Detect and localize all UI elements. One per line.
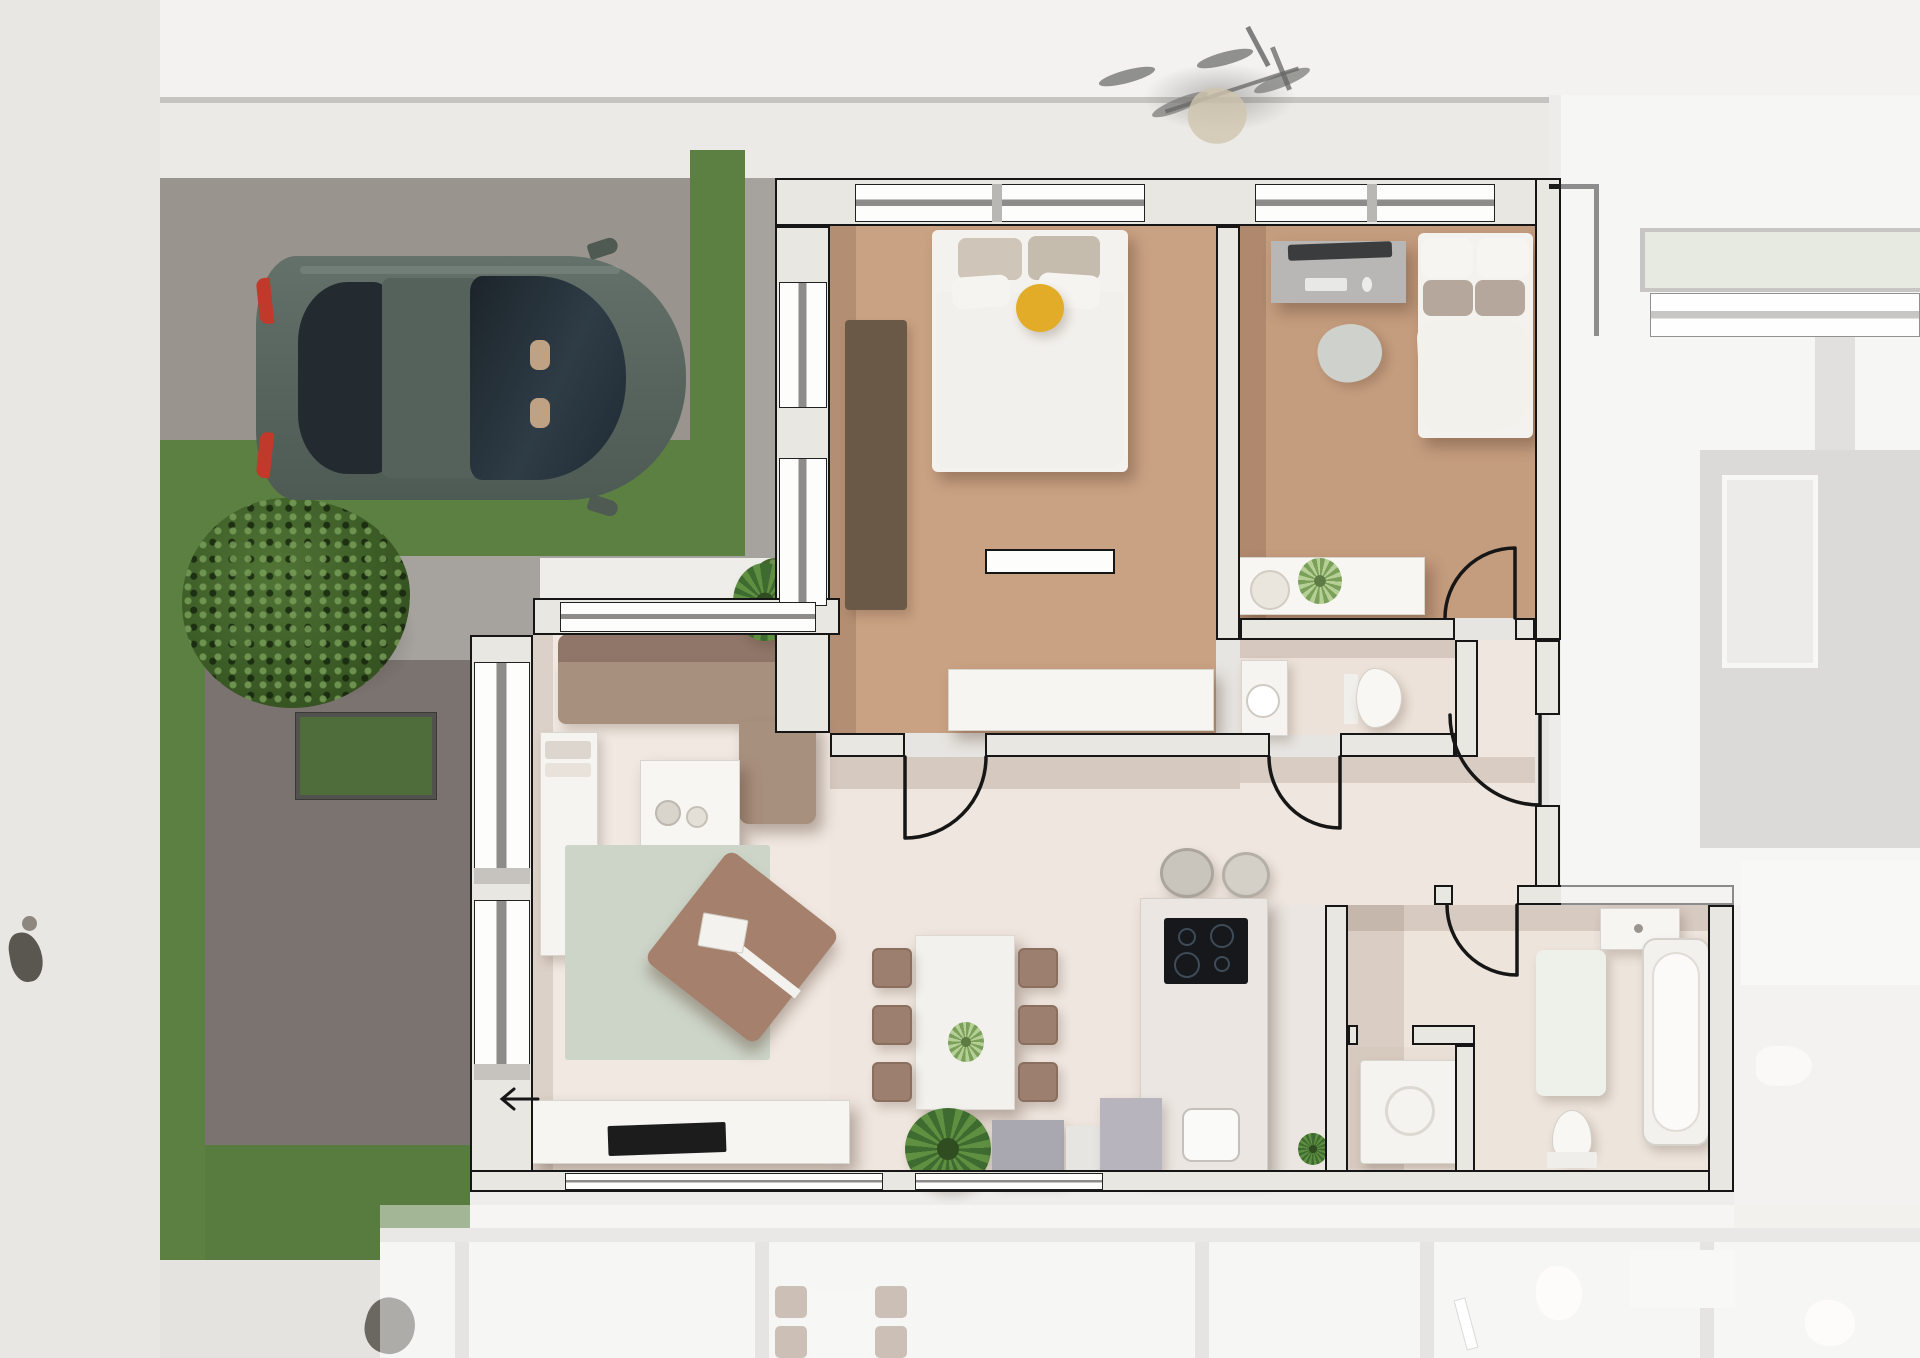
cooktop-ring-4 xyxy=(1214,956,1230,972)
wall-bedroom2-south xyxy=(1240,618,1455,640)
plant-spider-sideboard xyxy=(1298,558,1342,604)
floor-hall-nook xyxy=(1478,640,1535,759)
cooktop-ring-1 xyxy=(1178,928,1196,946)
cooktop-ring-2 xyxy=(1210,924,1234,948)
pillow-plaid-1 xyxy=(958,238,1022,280)
kitchen-sink xyxy=(1182,1108,1240,1162)
rug-bath-fluffy xyxy=(1536,950,1606,1096)
window-west-living-mullion-a xyxy=(474,868,530,884)
pavement-top xyxy=(160,0,1920,100)
dining-plant xyxy=(948,1022,984,1062)
pillow-single-taupe-1 xyxy=(1423,280,1473,316)
dining-chair-right-1 xyxy=(1018,948,1058,988)
car-headrest-right xyxy=(530,398,550,428)
bowl-floor-1 xyxy=(1160,848,1214,898)
storage-cube-white xyxy=(1066,1126,1100,1176)
car-rear-window xyxy=(298,282,390,474)
pavement-bottom-left xyxy=(160,1260,380,1358)
window-step-living xyxy=(560,602,816,632)
bowl-floor-2 xyxy=(1222,852,1270,898)
dining-chair-left-1 xyxy=(872,948,912,988)
car-headrest-left xyxy=(530,340,550,370)
shadow-living-north xyxy=(830,757,1240,789)
window-top-bedroom1-mullion xyxy=(992,184,1002,222)
cooktop-ring-3 xyxy=(1174,952,1200,978)
bowl-side-table-2 xyxy=(686,806,708,828)
window-west-bedroom1-a xyxy=(779,282,827,408)
window-south-living-b xyxy=(915,1173,1103,1190)
sideboard-bedroom1 xyxy=(948,669,1214,731)
car-roof xyxy=(382,278,478,478)
washing-machine-door xyxy=(1385,1086,1435,1136)
wall-east-hall-upper xyxy=(1535,640,1560,715)
grass-left-column xyxy=(160,556,206,1262)
wall-east-bedroom2 xyxy=(1535,178,1561,640)
bowl-side-table-1 xyxy=(655,800,681,826)
gravel-border-vertical xyxy=(745,178,775,558)
desk-keyboard xyxy=(1305,278,1347,291)
window-west-bedroom1-b xyxy=(779,458,827,606)
dining-chair-right-3 xyxy=(1018,1062,1058,1102)
bath-toilet-tank xyxy=(1547,1152,1597,1168)
wall-bath-east xyxy=(1708,905,1734,1192)
wall-bedrooms-south-1 xyxy=(830,733,905,757)
pillow-single-white-1 xyxy=(1421,238,1473,278)
planter-shrubs xyxy=(300,717,432,795)
floor-plan-scene: Apartment floor plan – top-down 3D archi… xyxy=(0,0,1920,1358)
wall-utility-east xyxy=(1455,1045,1475,1172)
wall-bedrooms-south-3 xyxy=(1340,733,1455,757)
sidewalk-left xyxy=(0,0,160,1358)
car-roof-highlight xyxy=(300,266,620,274)
window-west-living-a xyxy=(474,662,530,876)
plant-pot-kitchen xyxy=(1298,1133,1328,1165)
shadow-hall-north xyxy=(1240,757,1535,783)
cushion-yellow-dotted xyxy=(1016,284,1064,332)
pillow-white-1 xyxy=(951,274,1011,310)
window-west-living-b xyxy=(474,900,530,1072)
wall-wc-east xyxy=(1455,640,1478,757)
kitchen-cabinet-gray xyxy=(1100,1098,1162,1172)
divider-wall-bedroom1 xyxy=(985,549,1115,574)
wall-bedroom2-south-stub xyxy=(1515,618,1535,640)
overlay-washed-right-bottom xyxy=(1734,905,1920,1205)
duvet-single-rumpled xyxy=(1416,315,1534,435)
pillow-single-white-2 xyxy=(1477,238,1529,278)
cooktop-induction xyxy=(1164,918,1248,984)
tv-flatscreen xyxy=(608,1122,727,1156)
wall-utility-top-1 xyxy=(1348,1025,1358,1045)
wall-kitchen-corridor xyxy=(1325,905,1348,1172)
wc-basin xyxy=(1246,684,1280,718)
window-top-bedroom2-mullion xyxy=(1367,184,1377,222)
plate-sideboard xyxy=(1250,570,1290,610)
bench-items-1 xyxy=(545,741,591,759)
wall-bath-north-left xyxy=(1434,885,1453,905)
overlay-washed-lower-unit xyxy=(380,1205,1920,1358)
bench-items-2 xyxy=(545,763,591,777)
desk-mouse xyxy=(1362,277,1372,292)
overlay-washed-right-top xyxy=(1561,95,1920,905)
wall-utility-top-2 xyxy=(1412,1025,1475,1045)
pillow-single-taupe-2 xyxy=(1475,280,1525,316)
dining-chair-left-3 xyxy=(872,1062,912,1102)
wall-divider-bedrooms xyxy=(1216,226,1240,640)
sofa-chaise xyxy=(739,722,816,824)
rug-runner-bedroom1 xyxy=(845,320,907,610)
bathtub-inner xyxy=(1652,952,1700,1132)
window-south-living-a xyxy=(565,1173,883,1190)
pedestrian-head xyxy=(22,916,37,931)
shadow-wc-north xyxy=(1240,640,1455,658)
wall-bedrooms-south-2 xyxy=(985,733,1270,757)
bath-vanity-drain xyxy=(1634,924,1643,933)
window-west-living-mullion-b xyxy=(474,1064,530,1080)
dining-chair-left-2 xyxy=(872,1005,912,1045)
dining-chair-right-2 xyxy=(1018,1005,1058,1045)
